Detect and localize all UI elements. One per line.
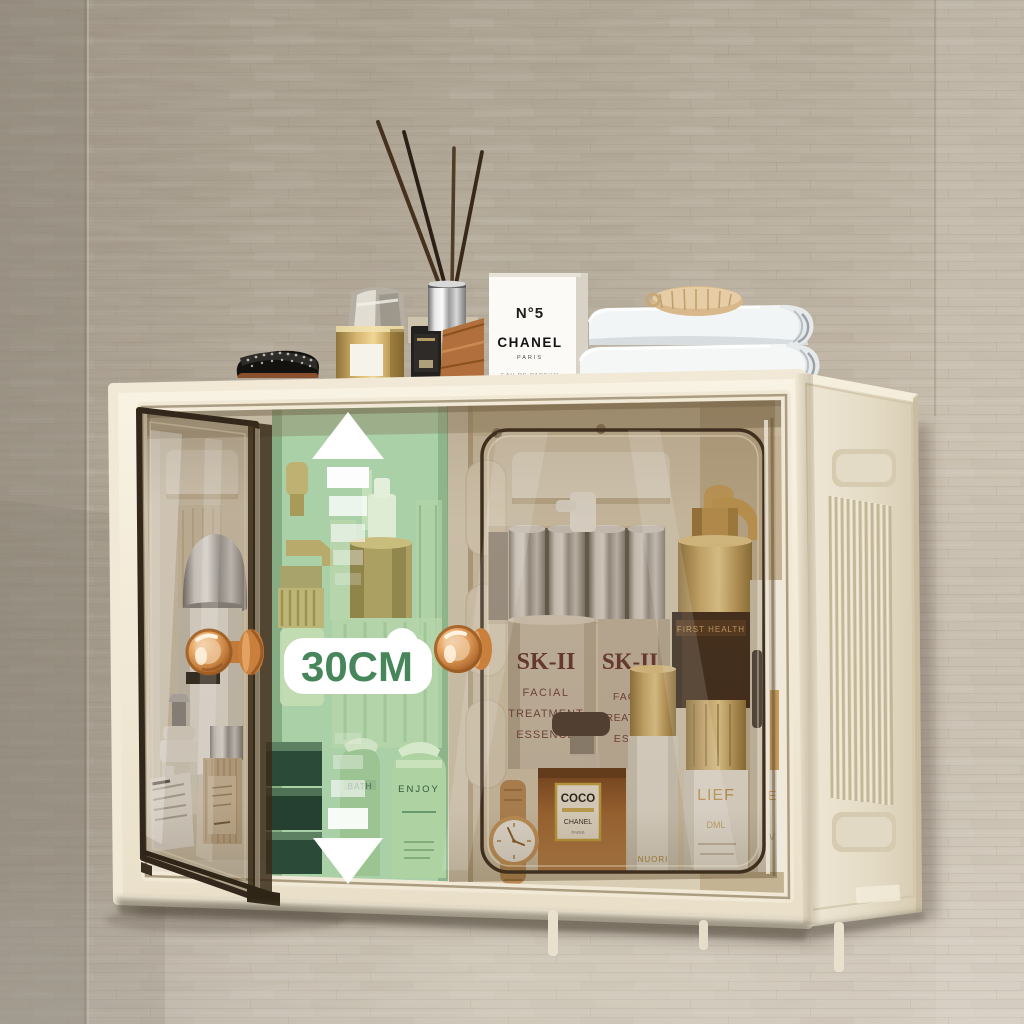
svg-text:ENJOY: ENJOY bbox=[398, 784, 440, 795]
svg-text:N°5: N°5 bbox=[516, 305, 544, 322]
svg-text:CHANEL: CHANEL bbox=[497, 335, 562, 350]
svg-text:30CM: 30CM bbox=[301, 643, 413, 690]
svg-text:PARIS: PARIS bbox=[517, 355, 543, 361]
